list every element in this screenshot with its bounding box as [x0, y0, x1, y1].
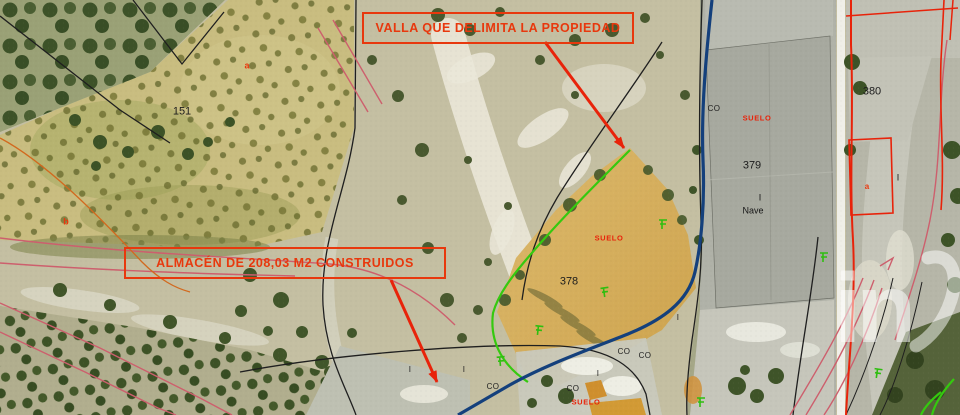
annotation-box-fence: VALLA QUE DELIMITA LA PROPIEDAD	[362, 12, 634, 44]
annotation-box-warehouse: ALMACÉN DE 208,03 M2 CONSTRUIDOS	[124, 247, 446, 279]
aerial-photo-terrain	[0, 0, 960, 415]
watermark-text: in	[834, 252, 911, 365]
map-graphic	[0, 0, 960, 415]
annotation-box-fence-label: VALLA QUE DELIMITA LA PROPIEDAD	[376, 21, 621, 35]
aerial-cadastral-map: 151 a b SUELO 378 SUELO 379 I Nave 380 I…	[0, 0, 960, 415]
annotation-box-warehouse-label: ALMACÉN DE 208,03 M2 CONSTRUIDOS	[156, 256, 414, 270]
